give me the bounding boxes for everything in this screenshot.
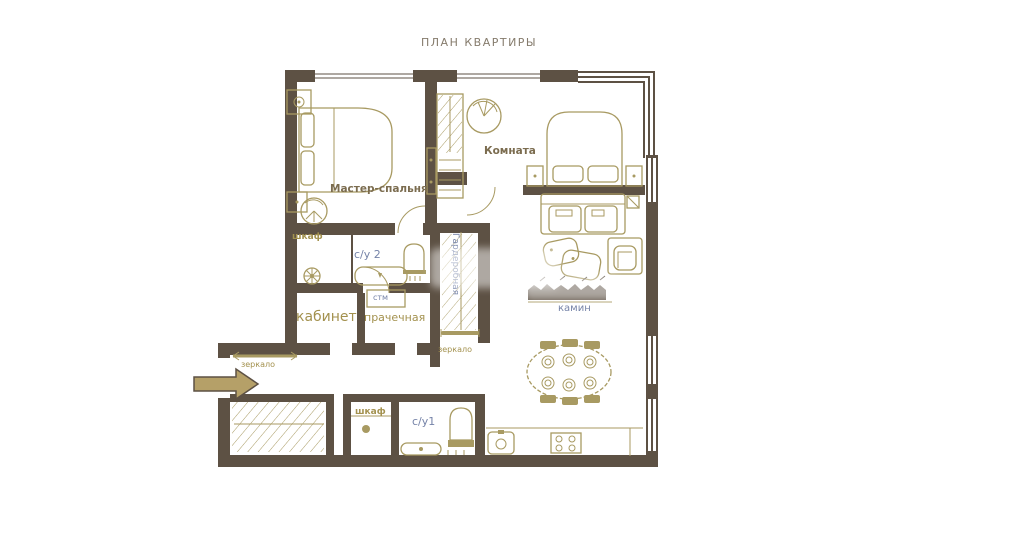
label-laundry: прачечная [364, 312, 425, 323]
label-master-bedroom: Мастер-спальня [330, 184, 428, 195]
sofa [541, 194, 639, 234]
closet-upper-coat-stand [304, 268, 320, 284]
room-bed [527, 112, 642, 186]
label-bathroom1: с/у1 [412, 416, 435, 427]
floor-plan-page: ПЛАН КВАРТИРЫ [0, 0, 1024, 548]
reading-chair [608, 238, 642, 274]
dining-table [527, 339, 611, 405]
closet-lower-item [351, 416, 391, 433]
floor-plan-svg [0, 0, 1024, 548]
label-mirror-entry: зеркало [241, 361, 275, 369]
label-mirror-wardrobe: зеркало [438, 346, 472, 354]
label-wardrobe: Гардеробная [450, 233, 459, 295]
room-armchair [467, 99, 501, 133]
label-room: Комната [484, 146, 536, 157]
label-washing-machine: стм [373, 294, 388, 302]
master-pouf [301, 198, 327, 224]
entry-closet [232, 402, 324, 452]
fireplace [528, 276, 612, 302]
label-closet-lower: шкаф [355, 408, 386, 417]
label-fireplace: камин [558, 304, 591, 314]
wardrobe-rail [441, 232, 479, 337]
label-bathroom2: с/у 2 [354, 249, 381, 260]
fireplace-armchairs [542, 237, 602, 281]
label-study: кабинет [296, 310, 357, 324]
label-closet-upper: шкаф [292, 233, 323, 242]
kitchen [486, 428, 643, 456]
